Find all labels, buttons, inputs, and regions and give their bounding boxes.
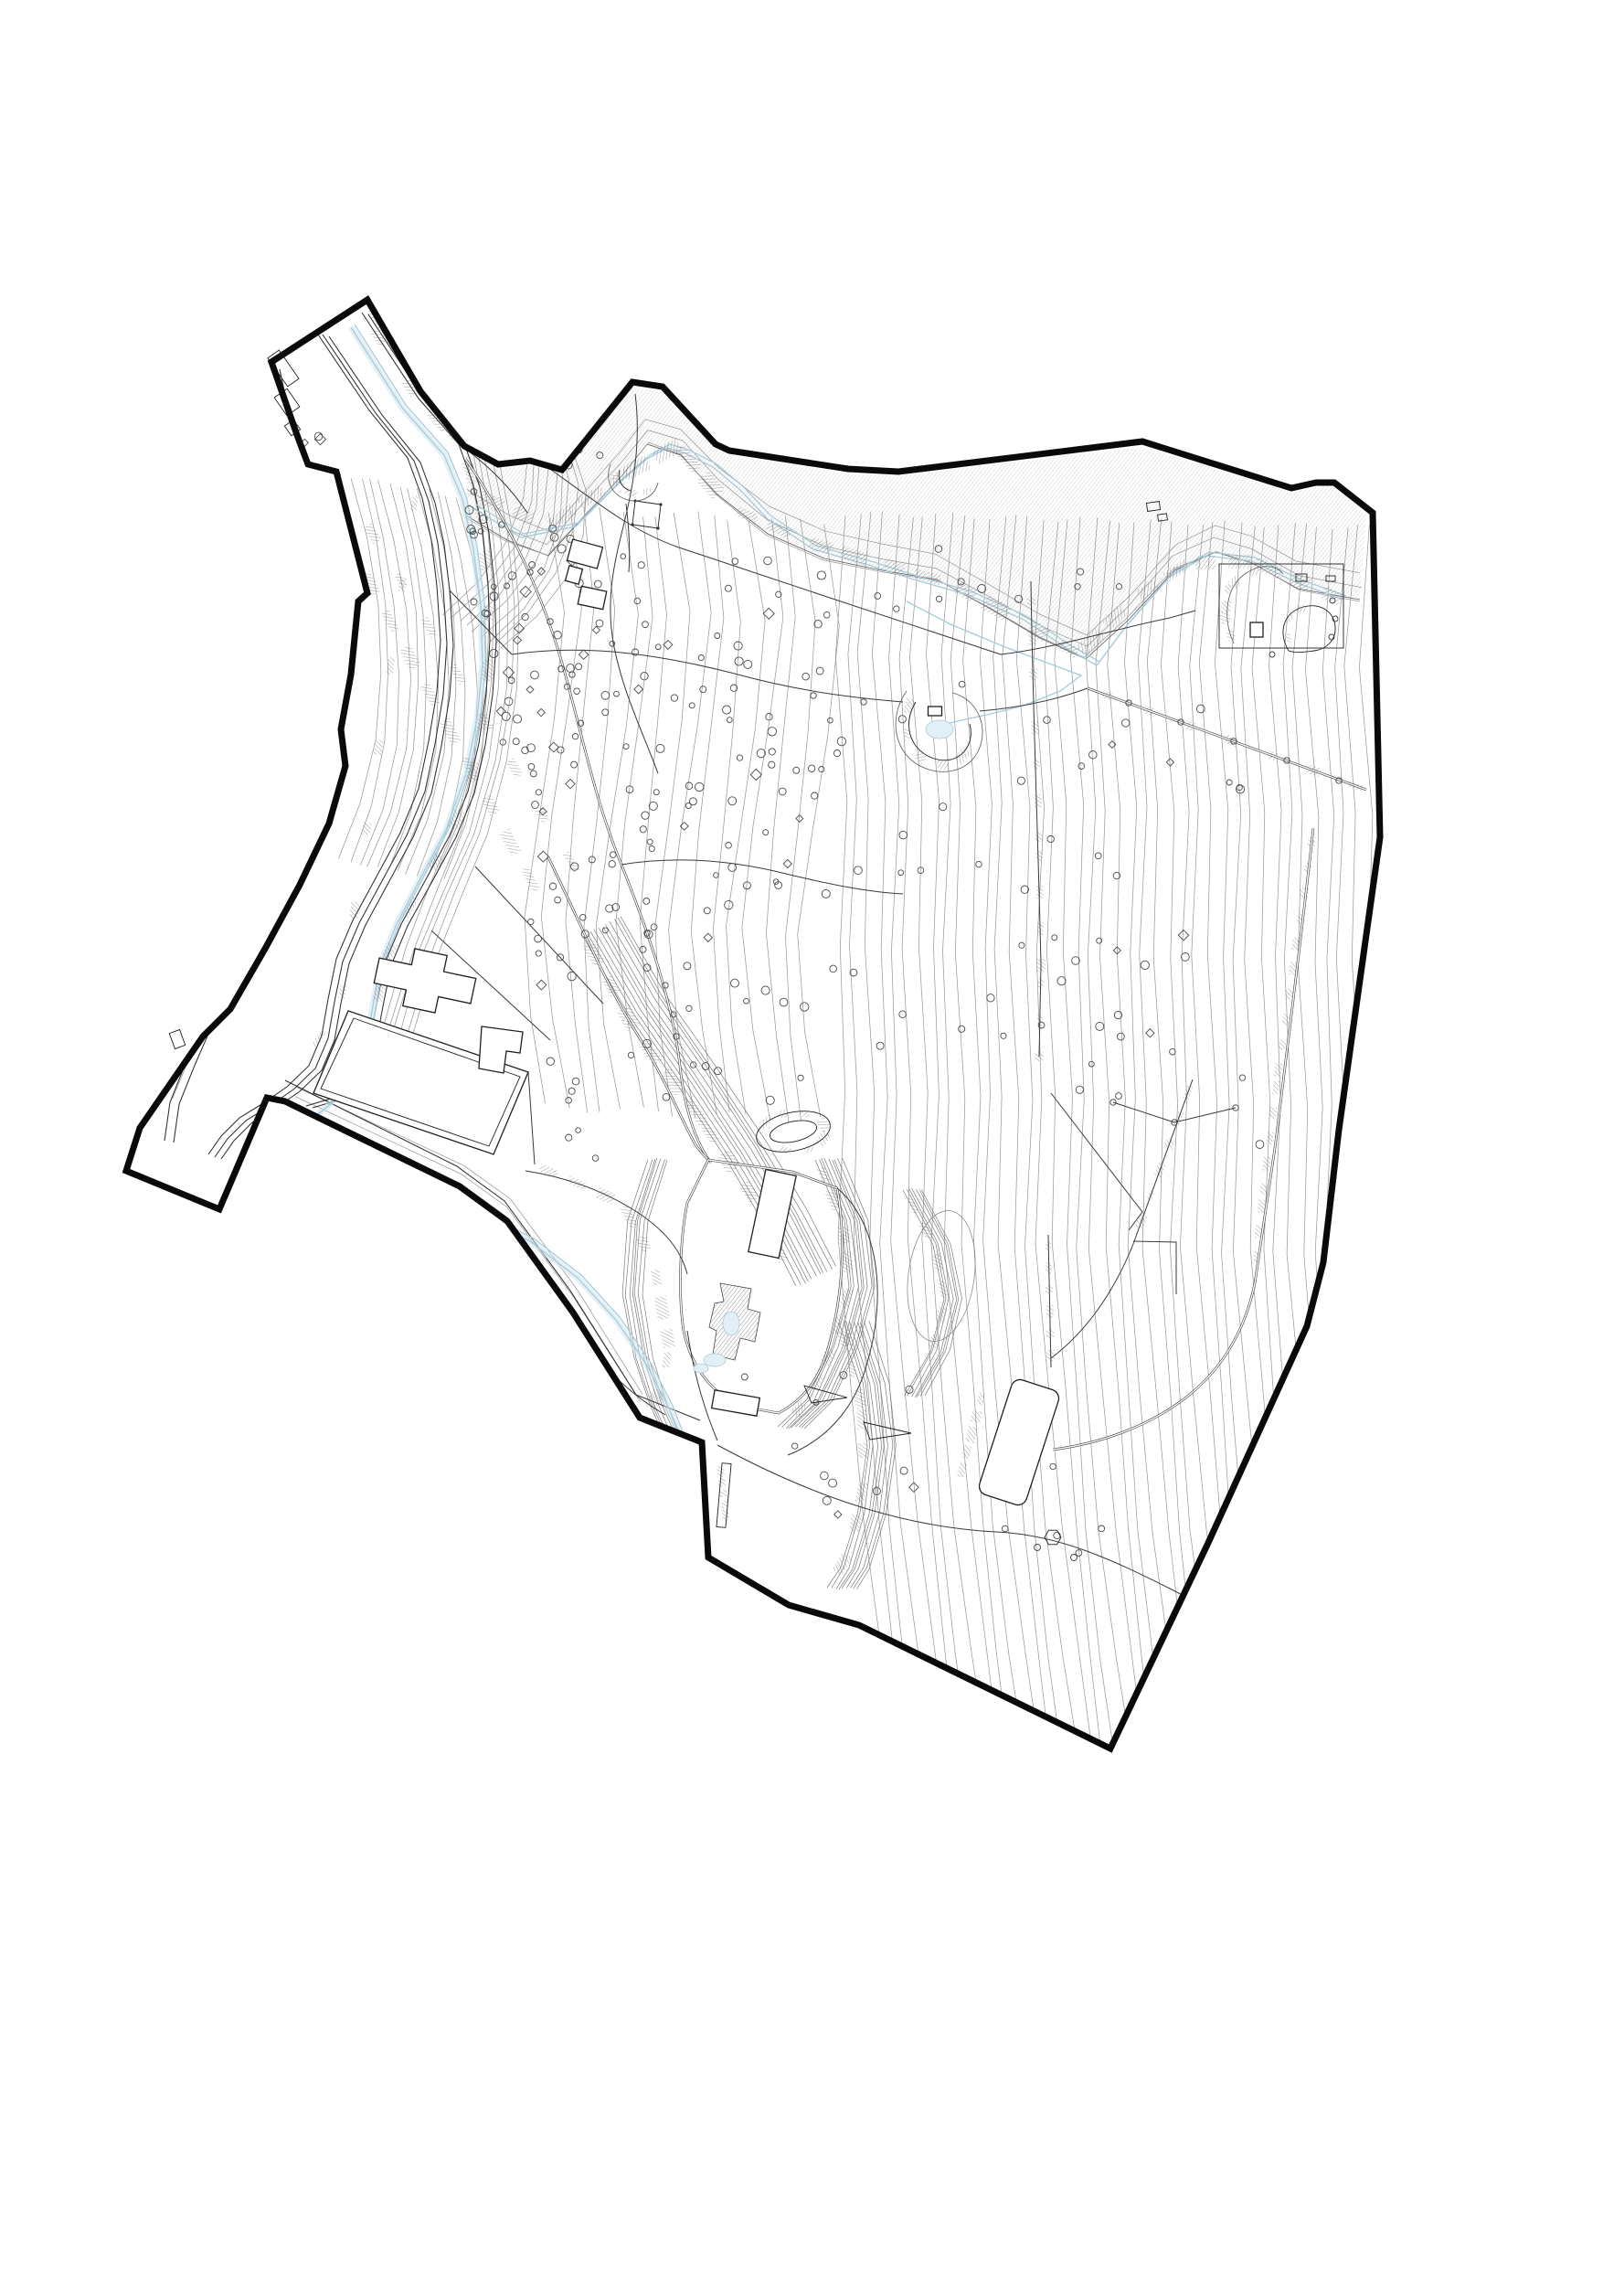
slope-hatch	[1269, 1107, 1278, 1120]
slope-hatch	[1259, 1184, 1268, 1195]
slope-hatch	[1228, 555, 1252, 569]
slope-hatch	[1034, 759, 1040, 769]
slope-hatch	[937, 760, 949, 771]
site-plan-drawing	[37, 15, 1603, 2281]
slope-hatch	[362, 822, 372, 834]
water-pool	[704, 1354, 726, 1366]
slope-hatch	[1195, 556, 1216, 570]
slope-hatch	[858, 1442, 869, 1458]
building-footprint	[1250, 622, 1263, 637]
slope-hatch	[719, 1489, 727, 1497]
slope-hatch	[721, 1500, 728, 1508]
slope-hatch	[1036, 886, 1043, 898]
water-pool	[926, 720, 953, 739]
corner-dot	[659, 503, 662, 505]
slope-hatch	[718, 1478, 727, 1487]
corner-dot	[656, 526, 659, 529]
slope-hatch	[1035, 833, 1044, 842]
slope-hatch	[1034, 794, 1041, 808]
map-canvas	[37, 15, 1603, 2281]
slope-hatch	[1220, 601, 1231, 614]
slope-hatch	[1278, 1039, 1286, 1050]
paper-background	[37, 15, 1603, 2281]
slope-hatch	[1035, 850, 1043, 861]
slope-hatch	[479, 550, 492, 570]
slope-hatch	[722, 1509, 730, 1520]
slope-hatch	[482, 660, 494, 681]
corner-dot	[631, 523, 633, 526]
slope-hatch	[1031, 721, 1039, 734]
water-pool	[694, 1364, 708, 1373]
slope-hatch	[1029, 669, 1037, 681]
slope-hatch	[1225, 583, 1233, 594]
building-footprint	[929, 707, 942, 716]
water-pool	[723, 1312, 739, 1335]
slope-hatch	[838, 1226, 851, 1244]
